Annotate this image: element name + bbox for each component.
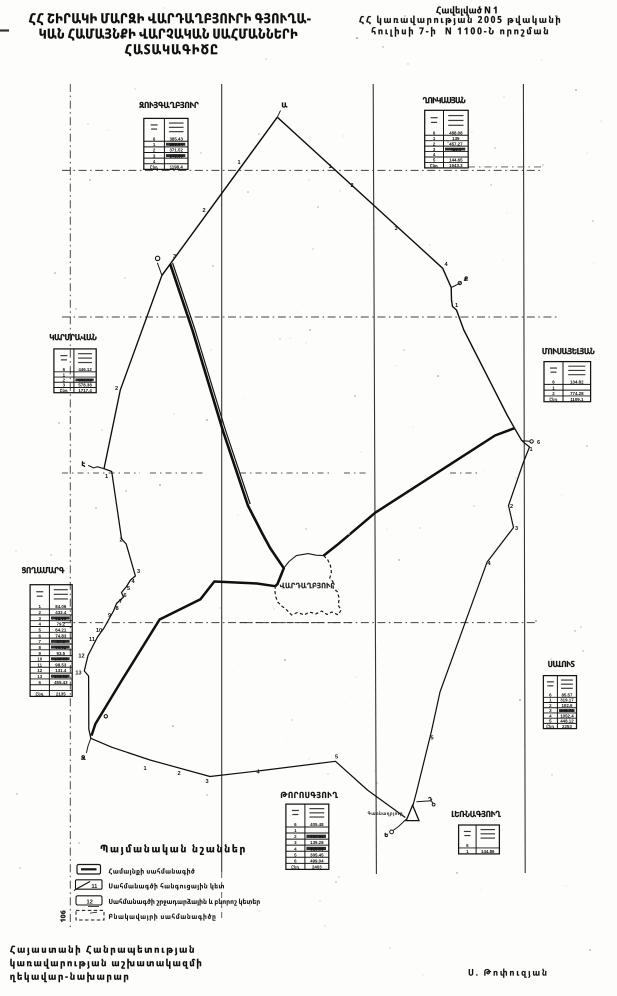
svg-text:12: 12	[87, 899, 93, 905]
svg-text:1: 1	[529, 447, 532, 453]
svg-text:2: 2	[115, 386, 118, 392]
svg-text:737.32: 737.32	[310, 834, 324, 839]
svg-text:12: 12	[78, 654, 84, 660]
svg-text:92.98: 92.98	[55, 616, 67, 621]
svg-text:87.2: 87.2	[57, 639, 66, 644]
svg-text:6: 6	[123, 593, 126, 599]
svg-text:499.04: 499.04	[310, 858, 324, 863]
svg-text:8: 8	[115, 606, 118, 612]
svg-text:2: 2	[119, 538, 122, 544]
svg-text:10: 10	[37, 657, 42, 662]
svg-text:144.65: 144.65	[449, 158, 463, 163]
svg-text:774.28: 774.28	[570, 391, 584, 396]
svg-text:131.4: 131.4	[55, 668, 67, 673]
svg-text:98.53: 98.53	[55, 662, 67, 667]
svg-text:2: 2	[510, 504, 513, 510]
svg-text:2: 2	[350, 183, 353, 189]
svg-text:13: 13	[37, 674, 42, 679]
svg-text:1198.4: 1198.4	[170, 165, 184, 170]
svg-text:433.4: 433.4	[55, 610, 67, 615]
svg-text:446.12: 446.12	[78, 367, 92, 372]
svg-text:305.45: 305.45	[310, 852, 324, 857]
svg-text:488.08: 488.08	[449, 130, 463, 135]
svg-text:12: 12	[37, 668, 42, 673]
svg-text:9: 9	[108, 613, 111, 619]
svg-text:5: 5	[127, 586, 130, 592]
svg-text:1109.1: 1109.1	[570, 397, 584, 402]
svg-text:11: 11	[89, 637, 95, 643]
svg-text:371.52: 371.52	[169, 148, 183, 153]
svg-text:1: 1	[237, 160, 240, 166]
svg-text:10: 10	[96, 628, 102, 634]
svg-text:1717.4: 1717.4	[78, 388, 92, 393]
svg-text:2: 2	[202, 208, 205, 214]
svg-text:74.83: 74.83	[55, 633, 67, 638]
svg-text:84.06: 84.06	[55, 604, 67, 609]
svg-text:64.21: 64.21	[55, 627, 67, 632]
svg-text:2403: 2403	[312, 864, 322, 869]
svg-text:1: 1	[328, 164, 331, 170]
svg-text:134.82: 134.82	[570, 380, 584, 385]
svg-text:11: 11	[37, 662, 42, 667]
svg-text:142.85: 142.85	[169, 153, 183, 158]
svg-text:7: 7	[119, 599, 122, 605]
svg-text:6: 6	[537, 440, 540, 446]
svg-text:385.43: 385.43	[169, 136, 183, 141]
svg-text:298.64: 298.64	[169, 142, 183, 147]
svg-text:3: 3	[205, 779, 208, 785]
svg-text:1: 1	[143, 766, 146, 772]
svg-text:102.62: 102.62	[54, 674, 68, 679]
svg-text:2135: 2135	[56, 692, 66, 697]
svg-text:13: 13	[75, 671, 81, 677]
svg-text:1: 1	[455, 303, 458, 309]
svg-text:3: 3	[173, 254, 176, 260]
svg-text:3: 3	[515, 526, 518, 532]
svg-text:418.3: 418.3	[450, 147, 462, 152]
svg-text:11: 11	[92, 884, 98, 890]
svg-text:3: 3	[137, 569, 140, 575]
svg-text:455.43: 455.43	[54, 680, 68, 685]
svg-text:5: 5	[335, 755, 338, 761]
svg-text:457.27: 457.27	[449, 141, 463, 146]
svg-text:1: 1	[105, 474, 108, 480]
svg-text:2253: 2253	[562, 724, 572, 729]
svg-text:1643.3: 1643.3	[449, 163, 463, 168]
svg-text:2: 2	[177, 771, 180, 777]
svg-text:135: 135	[452, 136, 460, 141]
svg-text:144.86: 144.86	[481, 849, 495, 854]
svg-text:405.48: 405.48	[310, 822, 324, 827]
svg-text:5: 5	[430, 736, 433, 742]
svg-text:98.52: 98.52	[55, 645, 67, 650]
svg-text:316.08: 316.08	[310, 846, 324, 851]
svg-text:79.2: 79.2	[57, 622, 66, 627]
svg-text:93.5: 93.5	[57, 651, 66, 656]
svg-text:139.28: 139.28	[310, 840, 324, 845]
svg-text:3: 3	[394, 226, 397, 232]
